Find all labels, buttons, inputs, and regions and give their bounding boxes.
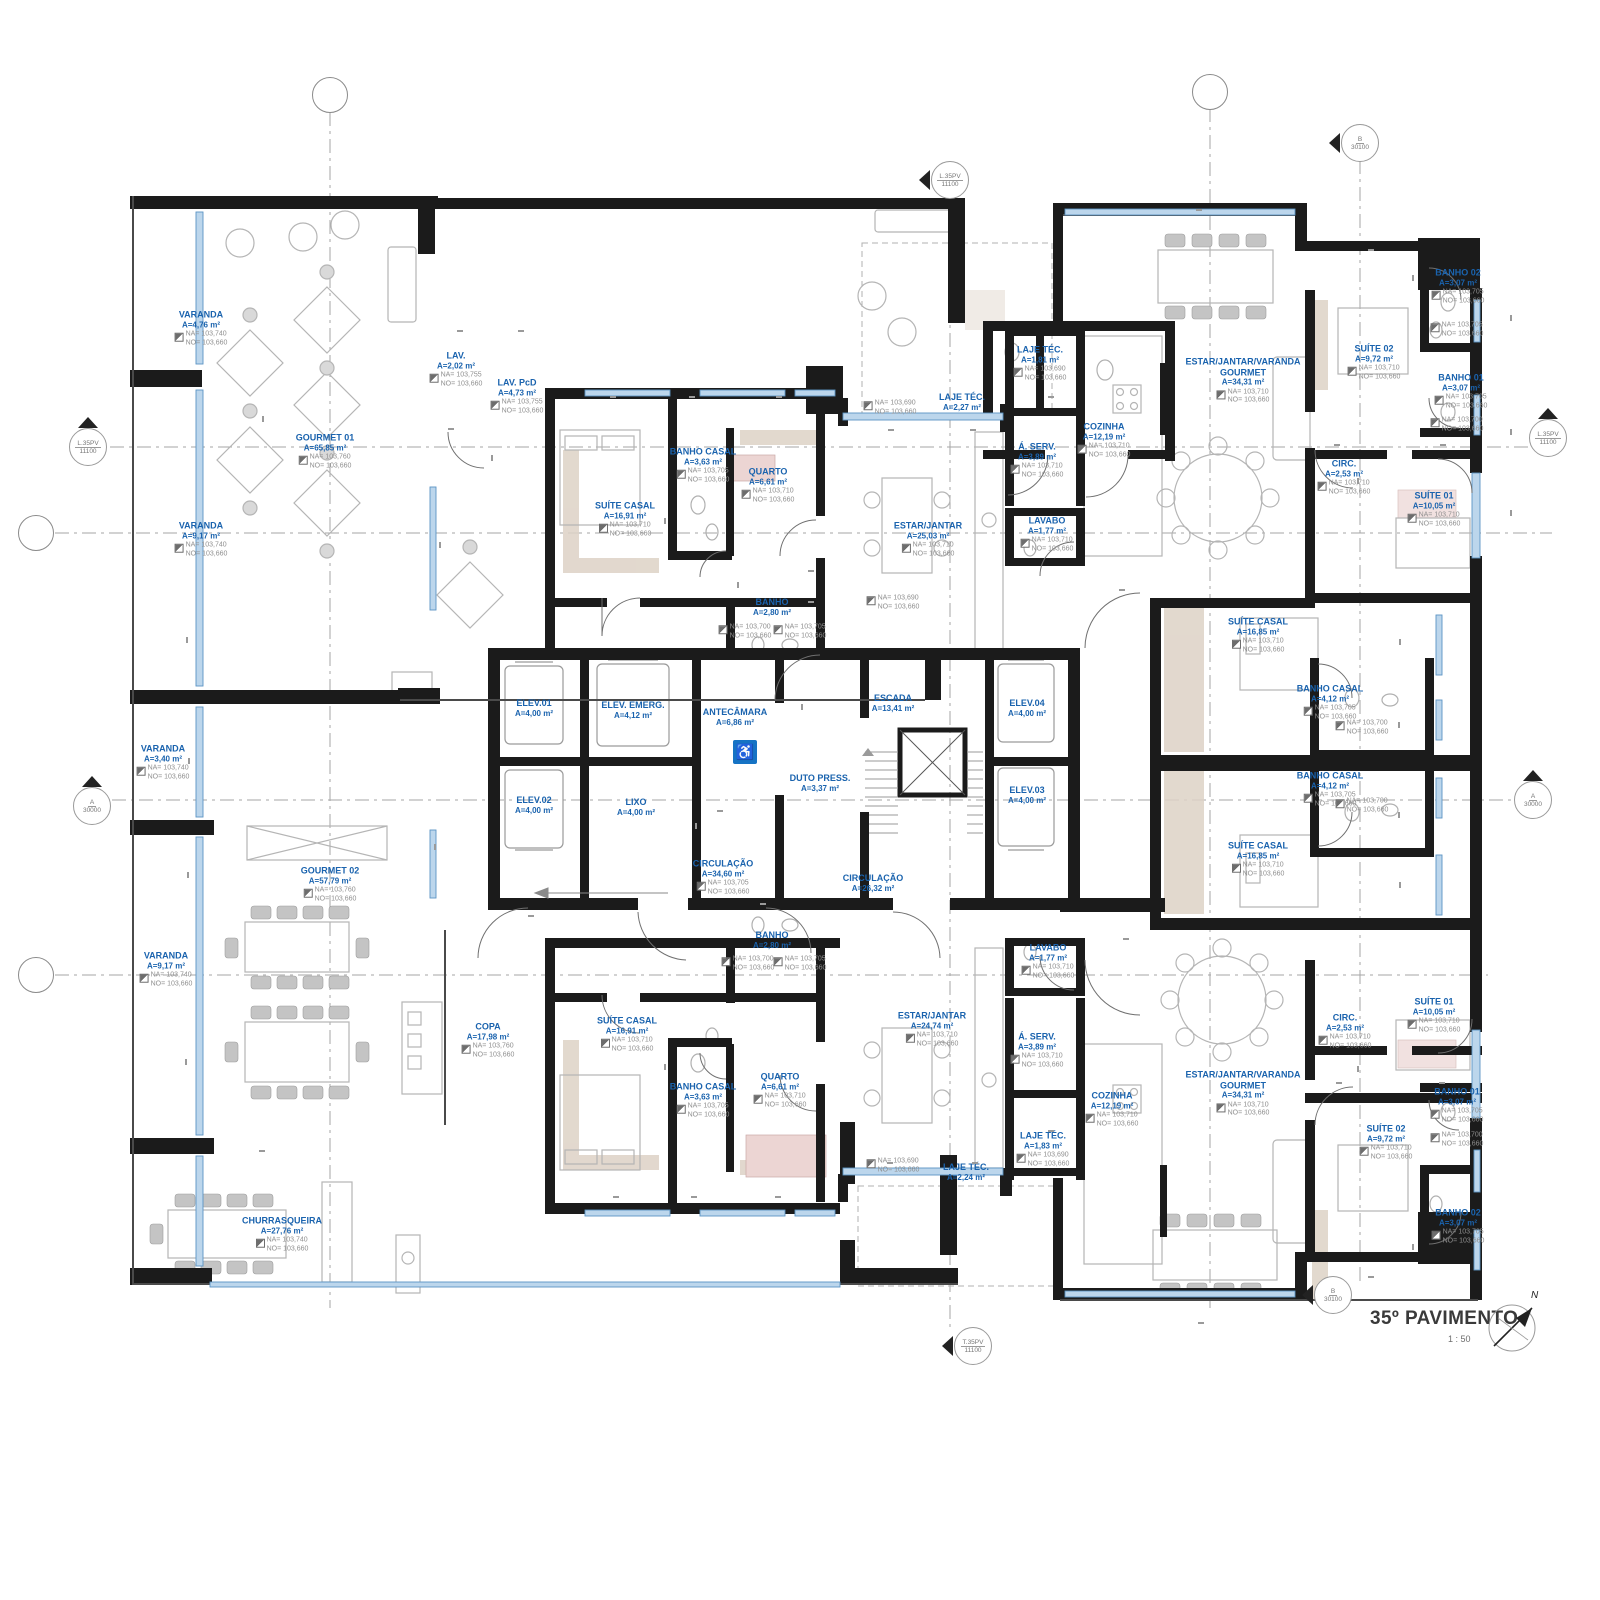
room-label: CIRC. A=2,53 m² NA= 103,710NO= 103,660: [1319, 1013, 1372, 1052]
door-window-tag: [259, 1150, 265, 1152]
level-mark: NA= 103,705NO= 103,660: [774, 955, 827, 973]
room-name: SUÍTE 01: [1408, 997, 1461, 1008]
door-window-tag: [887, 1162, 893, 1164]
room-name: COZINHA: [1078, 422, 1131, 433]
room-area: A=25,03 m²: [894, 531, 962, 540]
marker-triangle-icon: [942, 1336, 953, 1356]
room-label: CIRCULAÇÃO A=26,32 m²: [843, 873, 904, 893]
room-area: A=57,79 m²: [301, 876, 360, 885]
level-mark: NA= 103,700NO= 103,660: [719, 623, 772, 641]
room-name: SUÍTE 02: [1348, 344, 1401, 355]
level-icon: [140, 974, 149, 983]
door-window-tag: [186, 637, 188, 643]
section-marker: L.35PV11100: [1528, 418, 1568, 458]
door-window-tag: [1368, 1276, 1374, 1278]
room-area: A=65,85 m²: [296, 443, 355, 452]
door-window-tag: [1440, 444, 1446, 446]
room-name: LAV.: [430, 351, 483, 362]
level-mark: NA= 103,700NO= 103,660: [1431, 416, 1484, 434]
section-marker: B30100: [1340, 123, 1380, 163]
room-label: ESTAR/JANTAR A=25,03 m² NA= 103,710NO= 1…: [894, 521, 962, 560]
room-label: BANHO CASAL A=3,63 m² NA= 103,705NO= 103…: [670, 447, 737, 486]
room-name: LAVABO: [1022, 943, 1075, 954]
door-window-tag: [187, 872, 189, 878]
level-icon: [1319, 1036, 1328, 1045]
room-label: BANHO CASAL A=3,63 m² NA= 103,705NO= 103…: [670, 1082, 737, 1121]
room-area: A=4,00 m²: [1008, 796, 1046, 805]
room-name: CHURRASQUEIRA: [242, 1216, 322, 1227]
level-icon: [1011, 1055, 1020, 1064]
room-area: A=3,89 m²: [1011, 1042, 1064, 1051]
room-area: A=3,63 m²: [670, 457, 737, 466]
room-label: LAJE TÉC. A=1,81 m² NA= 103,690NO= 103,6…: [1014, 345, 1067, 384]
room-name: BANHO CASAL: [1297, 684, 1364, 695]
level-icon: [774, 625, 783, 634]
section-marker: A30000: [1513, 780, 1553, 820]
marker-triangle-icon: [1538, 408, 1558, 419]
section-marker: L.35PV11100: [930, 160, 970, 200]
room-area: A=6,61 m²: [754, 1082, 807, 1091]
section-marker: B30100: [1313, 1275, 1353, 1315]
door-window-tag: [188, 758, 190, 764]
room-name: BANHO: [753, 597, 791, 608]
room-name: CIRCULAÇÃO: [843, 873, 904, 884]
room-name: ESTAR/JANTAR: [894, 521, 962, 532]
stair-layer: [862, 730, 983, 833]
north-label: N: [1531, 1290, 1538, 1301]
level-icon: [1435, 396, 1444, 405]
room-label: GOURMET 01 A=65,85 m² NA= 103,760NO= 103…: [296, 433, 355, 472]
room-label: BANHO A=2,80 m²: [753, 597, 791, 617]
level-icon: [677, 470, 686, 479]
level-mark: NA= 103,700NO= 103,660: [1431, 1131, 1484, 1149]
room-label: Á. SERV. A=3,89 m² NA= 103,710NO= 103,66…: [1011, 1032, 1064, 1071]
room-area: A=10,05 m²: [1408, 1007, 1461, 1016]
door-window-tag: [1412, 1244, 1414, 1250]
room-name: Á. SERV.: [1011, 1032, 1064, 1043]
level-icon: [864, 401, 873, 410]
room-area: A=1,81 m²: [1014, 355, 1067, 364]
room-area: A=34,60 m²: [693, 869, 754, 878]
room-label: LAVABO A=1,77 m² NA= 103,710NO= 103,660: [1022, 943, 1075, 982]
marker-triangle-icon: [82, 776, 102, 787]
room-area: A=1,77 m²: [1021, 526, 1074, 535]
room-area: A=1,77 m²: [1022, 953, 1075, 962]
room-label: COZINHA A=12,19 m² NA= 103,710NO= 103,66…: [1078, 422, 1131, 461]
level-icon: [867, 1159, 876, 1168]
door-window-tag: [737, 582, 739, 588]
room-area: A=2,24 m²: [943, 1173, 989, 1182]
level-icon: [1232, 640, 1241, 649]
level-icon: [1017, 1154, 1026, 1163]
floor-plan: VARANDA A=4,76 m² NA= 103,740NO= 103,660…: [0, 0, 1600, 1600]
grid-axis-bubble: [1192, 74, 1228, 110]
door-window-tag: [434, 844, 436, 850]
room-area: A=4,00 m²: [515, 806, 553, 815]
room-name: LAJE TÉC.: [943, 1162, 989, 1173]
room-label: DUTO PRESS. A=3,37 m²: [790, 773, 851, 793]
room-label: QUARTO A=6,61 m² NA= 103,710NO= 103,660: [754, 1072, 807, 1111]
room-area: A=3,07 m²: [1431, 1097, 1484, 1106]
level-icon: [1431, 418, 1440, 427]
level-icon: [1078, 445, 1087, 454]
door-window-tag: [448, 428, 454, 430]
room-name: DUTO PRESS.: [790, 773, 851, 784]
door-window-tag: [664, 1064, 666, 1070]
room-area: A=16,85 m²: [1228, 851, 1288, 860]
door-window-tag: [1398, 722, 1400, 728]
room-name: VARANDA: [175, 521, 228, 532]
room-label: COZINHA A=12,19 m² NA= 103,710NO= 103,66…: [1086, 1091, 1139, 1130]
room-name: LAV. PcD: [491, 378, 544, 389]
room-label: LAJE TÉC. A=1,83 m² NA= 103,690NO= 103,6…: [1017, 1131, 1070, 1170]
room-name: BANHO CASAL: [670, 1082, 737, 1093]
room-area: A=6,86 m²: [703, 718, 768, 727]
level-icon: [1432, 291, 1441, 300]
level-icon: [867, 596, 876, 605]
room-area: A=3,63 m²: [670, 1092, 737, 1101]
level-icon: [697, 882, 706, 891]
room-name: ELEV.01: [515, 698, 553, 709]
level-mark: NA= 103,690NO= 103,660: [864, 399, 917, 417]
door-window-tag: [1357, 478, 1359, 484]
room-area: A=3,37 m²: [790, 784, 851, 793]
room-name: SUÍTE CASAL: [597, 1016, 657, 1027]
buffet: [247, 826, 387, 860]
level-icon: [256, 1239, 265, 1248]
room-area: A=4,00 m²: [515, 709, 553, 718]
door-window-tag: [808, 601, 814, 603]
level-icon: [299, 456, 308, 465]
level-icon: [1304, 794, 1313, 803]
room-area: A=12,19 m²: [1078, 432, 1131, 441]
room-area: A=1,83 m²: [1017, 1141, 1070, 1150]
level-icon: [1011, 465, 1020, 474]
room-name: ANTECÂMARA: [703, 707, 768, 718]
section-marker: T.35PV11100: [953, 1326, 993, 1366]
level-icon: [1021, 539, 1030, 548]
marker-triangle-icon: [1302, 1285, 1313, 1305]
room-label: Á. SERV. A=3,89 m² NA= 103,710NO= 103,66…: [1011, 442, 1064, 481]
room-label: SUÍTE 01 A=10,05 m² NA= 103,710NO= 103,6…: [1408, 997, 1461, 1036]
level-icon: [1432, 1231, 1441, 1240]
level-icon: [1431, 323, 1440, 332]
room-name: COZINHA: [1086, 1091, 1139, 1102]
door-window-tag: [1510, 315, 1512, 321]
room-label: VARANDA A=9,17 m² NA= 103,740NO= 103,660: [175, 521, 228, 560]
level-mark: NA= 103,700NO= 103,660: [1336, 719, 1389, 737]
room-name: BANHO: [753, 930, 791, 941]
level-icon: [599, 524, 608, 533]
room-label: LAV. A=2,02 m² NA= 103,755NO= 103,660: [430, 351, 483, 390]
room-label: LAJE TÉC. A=2,24 m²: [943, 1162, 989, 1182]
room-area: A=12,19 m²: [1086, 1101, 1139, 1110]
level-icon: [754, 1095, 763, 1104]
room-label: CHURRASQUEIRA A=27,76 m² NA= 103,740NO= …: [242, 1216, 322, 1255]
door-window-tag: [1398, 812, 1400, 818]
door-window-tag: [1510, 429, 1512, 435]
room-label: ELEV.02 A=4,00 m²: [515, 795, 553, 815]
room-name: VARANDA: [140, 951, 193, 962]
room-area: A=3,40 m²: [137, 754, 190, 763]
room-area: A=27,76 m²: [242, 1226, 322, 1235]
room-label: SUÍTE CASAL A=16,91 m² NA= 103,710NO= 10…: [595, 501, 655, 540]
level-icon: [677, 1105, 686, 1114]
door-window-tag: [528, 915, 534, 917]
room-area: A=2,02 m²: [430, 361, 483, 370]
door-window-tag: [1336, 1082, 1342, 1084]
level-mark: NA= 103,705NO= 103,660: [774, 623, 827, 641]
room-name: ELEV.02: [515, 795, 553, 806]
grid-axis-bubble: [18, 515, 54, 551]
room-label: LIXO A=4,00 m²: [617, 797, 655, 817]
door-window-tag: [689, 396, 695, 398]
door-window-tag: [801, 704, 803, 710]
room-label: SUÍTE CASAL A=16,85 m² NA= 103,710NO= 10…: [1228, 841, 1288, 880]
room-area: A=4,12 m²: [1297, 694, 1364, 703]
door-window-tag: [695, 823, 697, 829]
room-name: BANHO 01: [1431, 1087, 1484, 1098]
room-label: SUÍTE 02 A=9,72 m² NA= 103,710NO= 103,66…: [1360, 1124, 1413, 1163]
room-name: SUÍTE CASAL: [1228, 841, 1288, 852]
level-icon: [722, 957, 731, 966]
ramp-arrow: [535, 888, 668, 898]
marker-triangle-icon: [1329, 133, 1340, 153]
room-name: VARANDA: [175, 310, 228, 321]
room-area: A=9,17 m²: [175, 531, 228, 540]
room-area: A=4,00 m²: [1008, 709, 1046, 718]
room-area: A=2,53 m²: [1318, 469, 1371, 478]
room-area: A=3,89 m²: [1011, 452, 1064, 461]
grid-axis-bubble: [312, 77, 348, 113]
room-name: SUÍTE 02: [1360, 1124, 1413, 1135]
door-window-tag: [1357, 1066, 1359, 1072]
room-label: ELEV.01 A=4,00 m²: [515, 698, 553, 718]
level-mark: NA= 103,705NO= 103,660: [1431, 321, 1484, 339]
room-name: ELEV.04: [1008, 698, 1046, 709]
level-icon: [902, 544, 911, 553]
room-name: CIRCULAÇÃO: [693, 859, 754, 870]
room-area: A=3,07 m²: [1432, 1218, 1485, 1227]
room-name: ESTAR/JANTAR: [898, 1011, 966, 1022]
room-name: LAJE TÉC.: [1017, 1131, 1070, 1142]
door-window-tag: [1048, 396, 1054, 398]
room-area: A=4,73 m²: [491, 388, 544, 397]
level-icon: [1348, 367, 1357, 376]
level-icon: [137, 767, 146, 776]
level-icon: [304, 889, 313, 898]
door-window-tag: [1368, 249, 1374, 251]
room-label: LAV. PcD A=4,73 m² NA= 103,755NO= 103,66…: [491, 378, 544, 417]
level-icon: [601, 1039, 610, 1048]
door-window-tag: [775, 1196, 781, 1198]
marker-triangle-icon: [1523, 770, 1543, 781]
room-label: GOURMET 02 A=57,79 m² NA= 103,760NO= 103…: [301, 866, 360, 905]
level-mark: NA= 103,700NO= 103,660: [722, 955, 775, 973]
compass-icon: [1478, 1288, 1550, 1360]
door-window-tag: [610, 396, 616, 398]
level-icon: [1217, 1103, 1226, 1112]
room-label: SUÍTE CASAL A=16,85 m² NA= 103,710NO= 10…: [1228, 617, 1288, 656]
room-area: A=16,91 m²: [595, 511, 655, 520]
door-window-tag: [808, 570, 814, 572]
level-icon: [1408, 514, 1417, 523]
room-area: A=9,17 m²: [140, 961, 193, 970]
room-label: SUÍTE 01 A=10,05 m² NA= 103,710NO= 103,6…: [1408, 491, 1461, 530]
room-label: VARANDA A=9,17 m² NA= 103,740NO= 103,660: [140, 951, 193, 990]
level-mark: NA= 103,700NO= 103,660: [1336, 797, 1389, 815]
room-name: COPA: [462, 1022, 515, 1033]
room-area: A=2,27 m²: [939, 403, 985, 412]
door-window-tag: [776, 396, 782, 398]
room-label: CIRCULAÇÃO A=34,60 m² NA= 103,705NO= 103…: [693, 859, 754, 898]
level-icon: [742, 490, 751, 499]
level-icon: [430, 374, 439, 383]
room-area: A=16,91 m²: [597, 1026, 657, 1035]
room-area: A=6,61 m²: [742, 477, 795, 486]
room-area: A=34,31 m²: [1185, 1091, 1300, 1100]
room-label: VARANDA A=3,40 m² NA= 103,740NO= 103,660: [137, 744, 190, 783]
room-label: BANHO CASAL A=4,12 m² NA= 103,705NO= 103…: [1297, 684, 1364, 723]
level-icon: [906, 1034, 915, 1043]
room-label: LAVABO A=1,77 m² NA= 103,710NO= 103,660: [1021, 516, 1074, 555]
level-icon: [175, 333, 184, 342]
room-area: A=26,32 m²: [843, 884, 904, 893]
room-area: A=4,12 m²: [1297, 781, 1364, 790]
room-label: ESTAR/JANTAR/VARANDA GOURMET A=34,31 m² …: [1185, 356, 1300, 405]
room-label: SUÍTE 02 A=9,72 m² NA= 103,710NO= 103,66…: [1348, 344, 1401, 383]
room-area: A=13,41 m²: [872, 704, 914, 713]
room-label: ESTAR/JANTAR A=24,74 m² NA= 103,710NO= 1…: [898, 1011, 966, 1050]
room-label: QUARTO A=6,61 m² NA= 103,710NO= 103,660: [742, 467, 795, 506]
level-icon: [1304, 707, 1313, 716]
bed-hatch: [733, 455, 1456, 1177]
room-label: CIRC. A=2,53 m² NA= 103,710NO= 103,660: [1318, 459, 1371, 498]
room-area: A=3,07 m²: [1435, 383, 1488, 392]
room-name: QUARTO: [742, 467, 795, 478]
room-name: Á. SERV.: [1011, 442, 1064, 453]
level-icon: [719, 625, 728, 634]
door-window-tag: [760, 903, 766, 905]
marker-triangle-icon: [78, 417, 98, 428]
level-icon: [1431, 1133, 1440, 1142]
door-window-tag: [888, 429, 894, 431]
room-label: BANHO 01 A=3,07 m² NA= 103,705NO= 103,66…: [1431, 1087, 1484, 1126]
door-window-tag: [613, 1196, 619, 1198]
door-window-tag: [717, 810, 723, 812]
door-window-tag: [1123, 938, 1129, 940]
door-window-tag: [664, 518, 666, 524]
room-label: BANHO 02 A=3,07 m² NA= 103,705NO= 103,66…: [1432, 1208, 1485, 1247]
door-window-tag: [1399, 882, 1401, 888]
room-area: A=2,80 m²: [753, 608, 791, 617]
door-window-tag: [457, 330, 463, 332]
room-label: COPA A=17,98 m² NA= 103,760NO= 103,660: [462, 1022, 515, 1061]
room-name: GOURMET 01: [296, 433, 355, 444]
room-area: A=4,00 m²: [617, 808, 655, 817]
room-name: GOURMET 02: [301, 866, 360, 877]
room-name: ESTAR/JANTAR/VARANDA GOURMET: [1185, 1069, 1300, 1090]
room-label: ELEV.03 A=4,00 m²: [1008, 785, 1046, 805]
level-icon: [1336, 721, 1345, 730]
room-label: ESTAR/JANTAR/VARANDA GOURMET A=34,31 m² …: [1185, 1069, 1300, 1118]
room-name: BANHO CASAL: [1297, 771, 1364, 782]
level-icon: [491, 401, 500, 410]
room-name: LAVABO: [1021, 516, 1074, 527]
room-name: SUÍTE 01: [1408, 491, 1461, 502]
room-area: A=2,53 m²: [1319, 1023, 1372, 1032]
level-mark: NA= 103,690NO= 103,660: [867, 1157, 920, 1175]
room-label: BANHO 01 A=3,07 m² NA= 103,705NO= 103,66…: [1435, 373, 1488, 412]
level-icon: [175, 544, 184, 553]
room-area: A=4,76 m²: [175, 320, 228, 329]
room-name: SUÍTE CASAL: [595, 501, 655, 512]
room-name: QUARTO: [754, 1072, 807, 1083]
door-window-tag: [262, 416, 264, 422]
room-label: VARANDA A=4,76 m² NA= 103,740NO= 103,660: [175, 310, 228, 349]
level-icon: [1086, 1114, 1095, 1123]
door-window-tag: [970, 429, 976, 431]
section-marker: A30000: [72, 786, 112, 826]
room-label: ELEV.04 A=4,00 m²: [1008, 698, 1046, 718]
room-label: SUÍTE CASAL A=16,91 m² NA= 103,710NO= 10…: [597, 1016, 657, 1055]
room-area: A=24,74 m²: [898, 1021, 966, 1030]
room-label: ESCADA A=13,41 m²: [872, 693, 914, 713]
level-icon: [1232, 864, 1241, 873]
room-name: ESTAR/JANTAR/VARANDA GOURMET: [1185, 356, 1300, 377]
room-label: LAJE TÉC. A=2,27 m²: [939, 392, 985, 412]
level-icon: [1431, 1110, 1440, 1119]
room-area: A=34,31 m²: [1185, 378, 1300, 387]
room-name: LAJE TÉC.: [939, 392, 985, 403]
level-icon: [1014, 368, 1023, 377]
room-name: ELEV. EMERG.: [601, 700, 664, 711]
room-area: A=9,72 m²: [1348, 354, 1401, 363]
level-icon: [1360, 1147, 1369, 1156]
room-name: BANHO 02: [1432, 268, 1485, 279]
room-area: A=3,07 m²: [1432, 278, 1485, 287]
room-name: ELEV.03: [1008, 785, 1046, 796]
section-marker: L.35PV11100: [68, 427, 108, 467]
room-name: BANHO CASAL: [670, 447, 737, 458]
door-window-tag: [691, 1196, 697, 1198]
level-icon: [1318, 482, 1327, 491]
door-window-tag: [1198, 1322, 1204, 1324]
room-area: A=17,98 m²: [462, 1032, 515, 1041]
room-area: A=16,85 m²: [1228, 627, 1288, 636]
room-name: CIRC.: [1318, 459, 1371, 470]
door-window-tag: [1412, 275, 1414, 281]
room-name: LIXO: [617, 797, 655, 808]
door-window-tag: [1119, 589, 1125, 591]
door-window-tag: [1048, 1130, 1054, 1132]
door-window-tag: [1399, 639, 1401, 645]
north-compass: N: [1478, 1288, 1550, 1360]
room-name: BANHO 01: [1435, 373, 1488, 384]
level-icon: [1022, 966, 1031, 975]
room-area: A=4,12 m²: [601, 711, 664, 720]
room-label: ELEV. EMERG. A=4,12 m²: [601, 700, 664, 720]
grid-axis-bubble: [18, 957, 54, 993]
room-area: A=10,05 m²: [1408, 501, 1461, 510]
room-name: CIRC.: [1319, 1013, 1372, 1024]
door-window-tag: [1334, 444, 1340, 446]
door-window-tag: [1439, 1082, 1445, 1084]
room-name: VARANDA: [137, 744, 190, 755]
room-name: ESCADA: [872, 693, 914, 704]
room-label: BANHO 02 A=3,07 m² NA= 103,705NO= 103,66…: [1432, 268, 1485, 307]
door-window-tag: [1510, 510, 1512, 516]
